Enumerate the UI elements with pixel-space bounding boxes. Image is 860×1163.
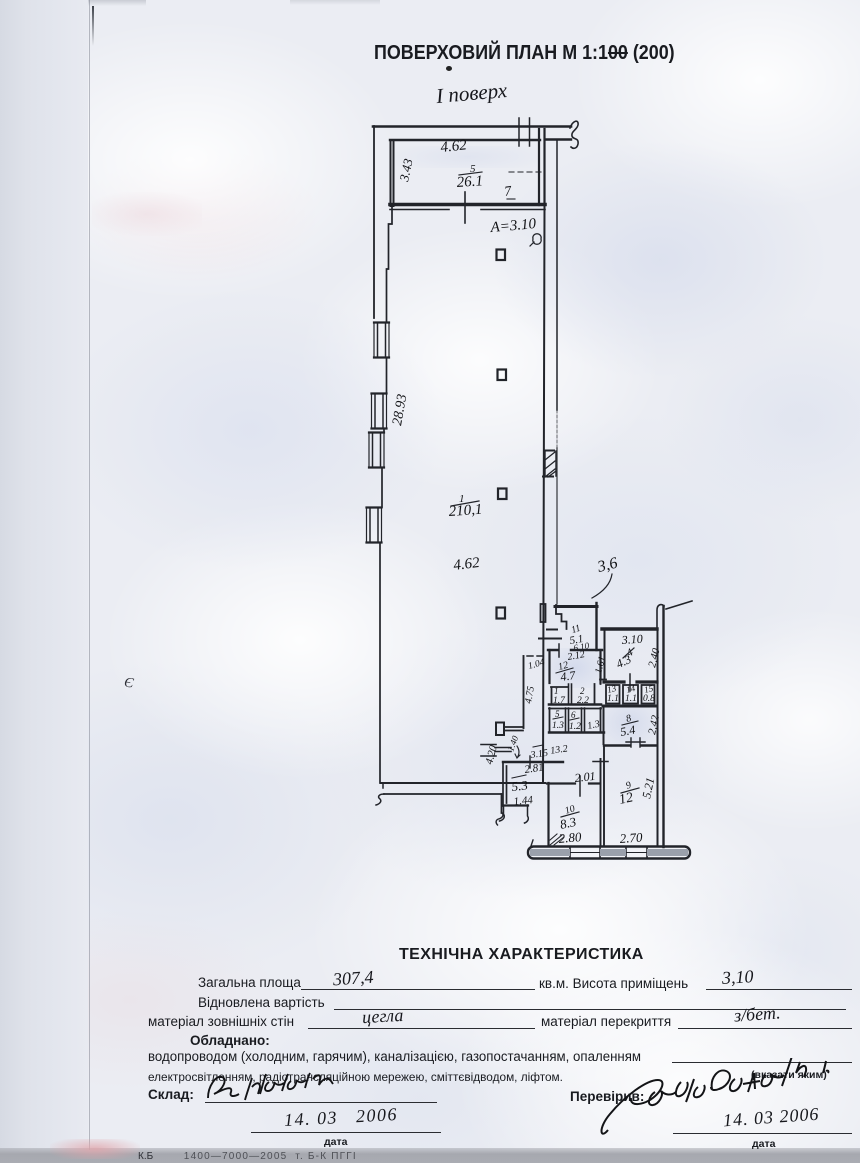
svg-text:3,6: 3,6: [595, 555, 619, 577]
svg-text:2.12: 2.12: [567, 649, 586, 663]
svg-text:2.40: 2.40: [646, 647, 662, 669]
svg-text:2.42: 2.42: [646, 714, 662, 736]
svg-text:2: 2: [580, 686, 585, 696]
svg-text:5.3: 5.3: [511, 777, 529, 794]
svg-text:3.43: 3.43: [396, 157, 416, 184]
svg-text:12: 12: [618, 790, 635, 808]
svg-text:2.2: 2.2: [577, 696, 589, 706]
svg-text:3.10: 3.10: [620, 632, 643, 648]
svg-text:1.7: 1.7: [553, 696, 566, 706]
svg-text:210,1: 210,1: [448, 502, 483, 520]
svg-text:5.4: 5.4: [619, 723, 636, 739]
svg-text:1: 1: [554, 686, 559, 696]
svg-text:1.1: 1.1: [625, 694, 637, 704]
svg-text:2.70: 2.70: [619, 829, 643, 846]
svg-text:2.81: 2.81: [524, 761, 545, 776]
svg-text:1.61: 1.61: [593, 655, 608, 675]
svg-text:2.01: 2.01: [574, 769, 596, 785]
svg-text:28.93: 28.93: [390, 393, 410, 427]
svg-text:0.8: 0.8: [643, 694, 655, 704]
svg-text:7: 7: [503, 184, 513, 200]
svg-text:1.1: 1.1: [607, 694, 619, 704]
svg-text:1.2: 1.2: [569, 722, 581, 732]
svg-text:26.1: 26.1: [456, 173, 483, 191]
svg-text:4.75: 4.75: [523, 685, 537, 704]
svg-text:2.80: 2.80: [558, 829, 582, 846]
svg-text:А=3.10: А=3.10: [489, 216, 537, 236]
svg-text:13.2: 13.2: [550, 743, 569, 756]
svg-text:5.21: 5.21: [639, 776, 657, 799]
svg-text:4.62: 4.62: [440, 137, 468, 156]
svg-text:1.3: 1.3: [586, 719, 601, 732]
svg-text:4.7: 4.7: [559, 668, 577, 684]
svg-text:3.15: 3.15: [529, 748, 549, 761]
svg-text:1.3: 1.3: [552, 721, 564, 731]
svg-text:1.44: 1.44: [513, 794, 534, 808]
svg-text:4.62: 4.62: [453, 555, 482, 574]
